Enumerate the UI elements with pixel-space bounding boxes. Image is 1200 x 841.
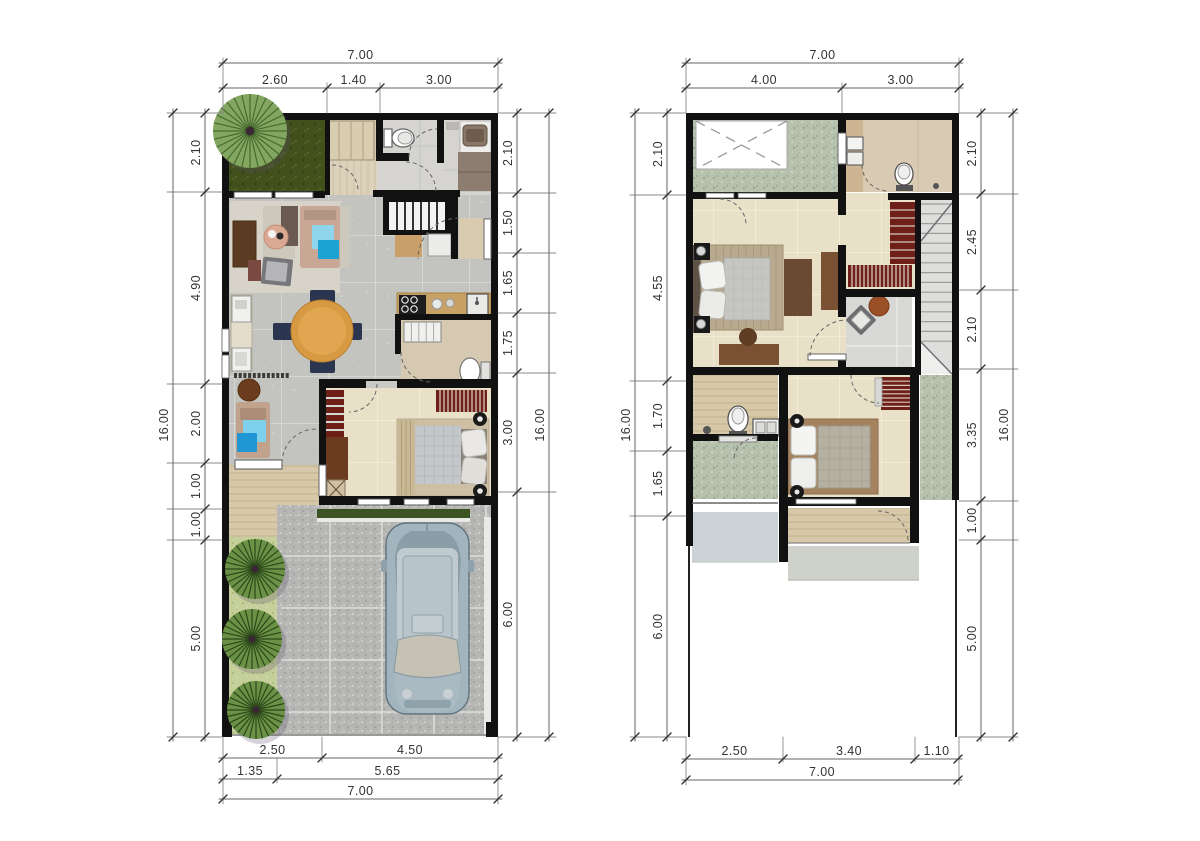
svg-text:5.00: 5.00: [189, 626, 203, 652]
svg-text:4.90: 4.90: [189, 275, 203, 301]
svg-text:5.00: 5.00: [965, 626, 979, 652]
svg-text:6.00: 6.00: [651, 614, 665, 640]
svg-text:1.40: 1.40: [341, 73, 367, 87]
svg-text:1.65: 1.65: [501, 270, 515, 296]
svg-text:7.00: 7.00: [348, 48, 374, 62]
svg-text:1.75: 1.75: [501, 330, 515, 356]
svg-text:2.10: 2.10: [651, 141, 665, 167]
svg-text:6.00: 6.00: [501, 602, 515, 628]
svg-text:3.35: 3.35: [965, 422, 979, 448]
svg-text:16.00: 16.00: [997, 408, 1011, 441]
svg-text:2.00: 2.00: [189, 411, 203, 437]
svg-text:16.00: 16.00: [619, 408, 633, 441]
svg-text:2.10: 2.10: [965, 317, 979, 343]
svg-text:1.10: 1.10: [924, 744, 950, 758]
svg-text:1.50: 1.50: [501, 210, 515, 236]
svg-text:2.10: 2.10: [189, 140, 203, 166]
svg-text:2.10: 2.10: [501, 140, 515, 166]
svg-text:2.45: 2.45: [965, 229, 979, 255]
svg-text:2.50: 2.50: [722, 744, 748, 758]
svg-text:4.55: 4.55: [651, 275, 665, 301]
svg-text:1.70: 1.70: [651, 403, 665, 429]
svg-text:5.65: 5.65: [375, 764, 401, 778]
svg-text:7.00: 7.00: [348, 784, 374, 798]
svg-text:1.35: 1.35: [237, 764, 263, 778]
svg-text:1.65: 1.65: [651, 471, 665, 497]
svg-text:4.00: 4.00: [751, 73, 777, 87]
svg-text:3.00: 3.00: [426, 73, 452, 87]
svg-text:16.00: 16.00: [157, 408, 171, 441]
svg-text:7.00: 7.00: [810, 48, 836, 62]
svg-text:1.00: 1.00: [189, 512, 203, 538]
svg-text:2.60: 2.60: [262, 73, 288, 87]
svg-text:2.10: 2.10: [965, 141, 979, 167]
svg-text:3.40: 3.40: [836, 744, 862, 758]
svg-text:7.00: 7.00: [809, 765, 835, 779]
svg-text:2.50: 2.50: [260, 743, 286, 757]
svg-text:3.00: 3.00: [888, 73, 914, 87]
svg-text:1.00: 1.00: [189, 473, 203, 499]
svg-text:4.50: 4.50: [397, 743, 423, 757]
svg-text:1.00: 1.00: [965, 508, 979, 534]
svg-text:3.00: 3.00: [501, 420, 515, 446]
svg-text:16.00: 16.00: [533, 408, 547, 441]
